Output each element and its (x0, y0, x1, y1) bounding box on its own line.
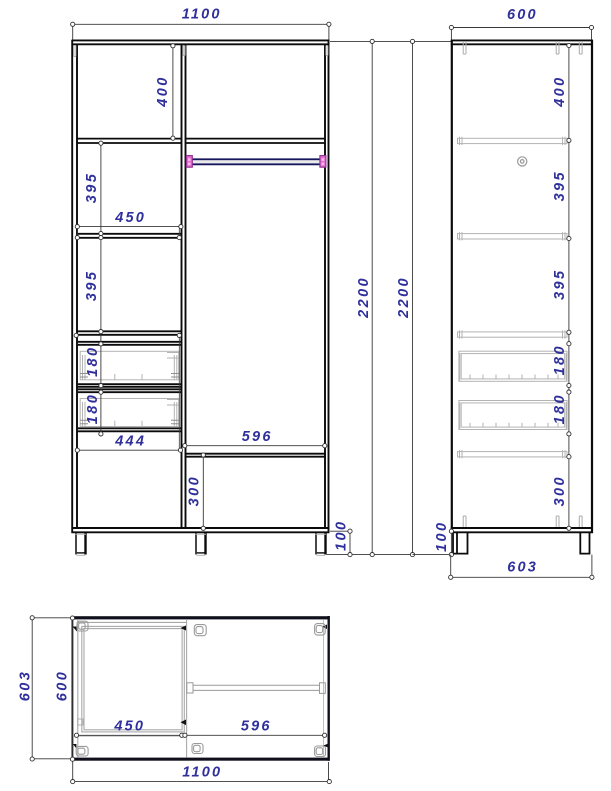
svg-text:180: 180 (85, 393, 101, 424)
svg-text:1100: 1100 (182, 7, 222, 23)
svg-text:400: 400 (552, 75, 568, 107)
svg-text:395: 395 (552, 268, 568, 299)
svg-text:180: 180 (552, 393, 568, 424)
svg-text:100: 100 (333, 519, 349, 550)
svg-text:444: 444 (114, 433, 146, 449)
svg-text:300: 300 (552, 475, 568, 506)
svg-text:180: 180 (85, 345, 101, 376)
svg-text:395: 395 (84, 172, 100, 203)
svg-text:395: 395 (84, 270, 100, 301)
svg-text:395: 395 (552, 170, 568, 201)
svg-text:603: 603 (507, 560, 538, 576)
svg-text:2200: 2200 (356, 276, 372, 319)
svg-text:100: 100 (434, 520, 450, 551)
svg-text:180: 180 (552, 344, 568, 375)
svg-text:2200: 2200 (396, 276, 412, 319)
svg-text:603: 603 (17, 670, 33, 701)
svg-text:400: 400 (155, 75, 171, 107)
svg-text:596: 596 (241, 719, 272, 735)
svg-text:600: 600 (55, 670, 71, 701)
svg-text:450: 450 (113, 719, 145, 735)
svg-text:600: 600 (507, 7, 538, 23)
svg-text:300: 300 (187, 475, 203, 506)
svg-text:450: 450 (114, 210, 146, 226)
svg-text:1100: 1100 (182, 765, 222, 781)
svg-text:596: 596 (242, 429, 273, 445)
